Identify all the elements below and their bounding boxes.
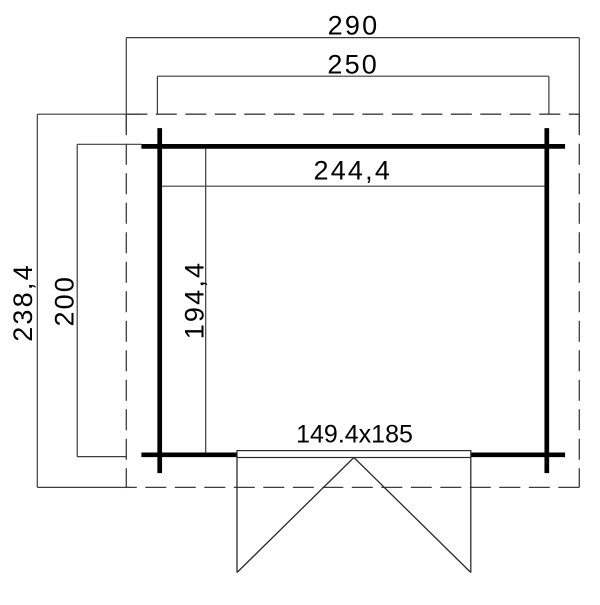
svg-text:238,4: 238,4 [8, 263, 38, 342]
svg-text:200: 200 [50, 275, 80, 327]
svg-text:149.4x185: 149.4x185 [296, 421, 413, 449]
svg-text:290: 290 [328, 11, 380, 41]
svg-text:194,4: 194,4 [179, 261, 209, 340]
svg-text:244,4: 244,4 [314, 155, 393, 185]
svg-text:250: 250 [327, 49, 379, 79]
